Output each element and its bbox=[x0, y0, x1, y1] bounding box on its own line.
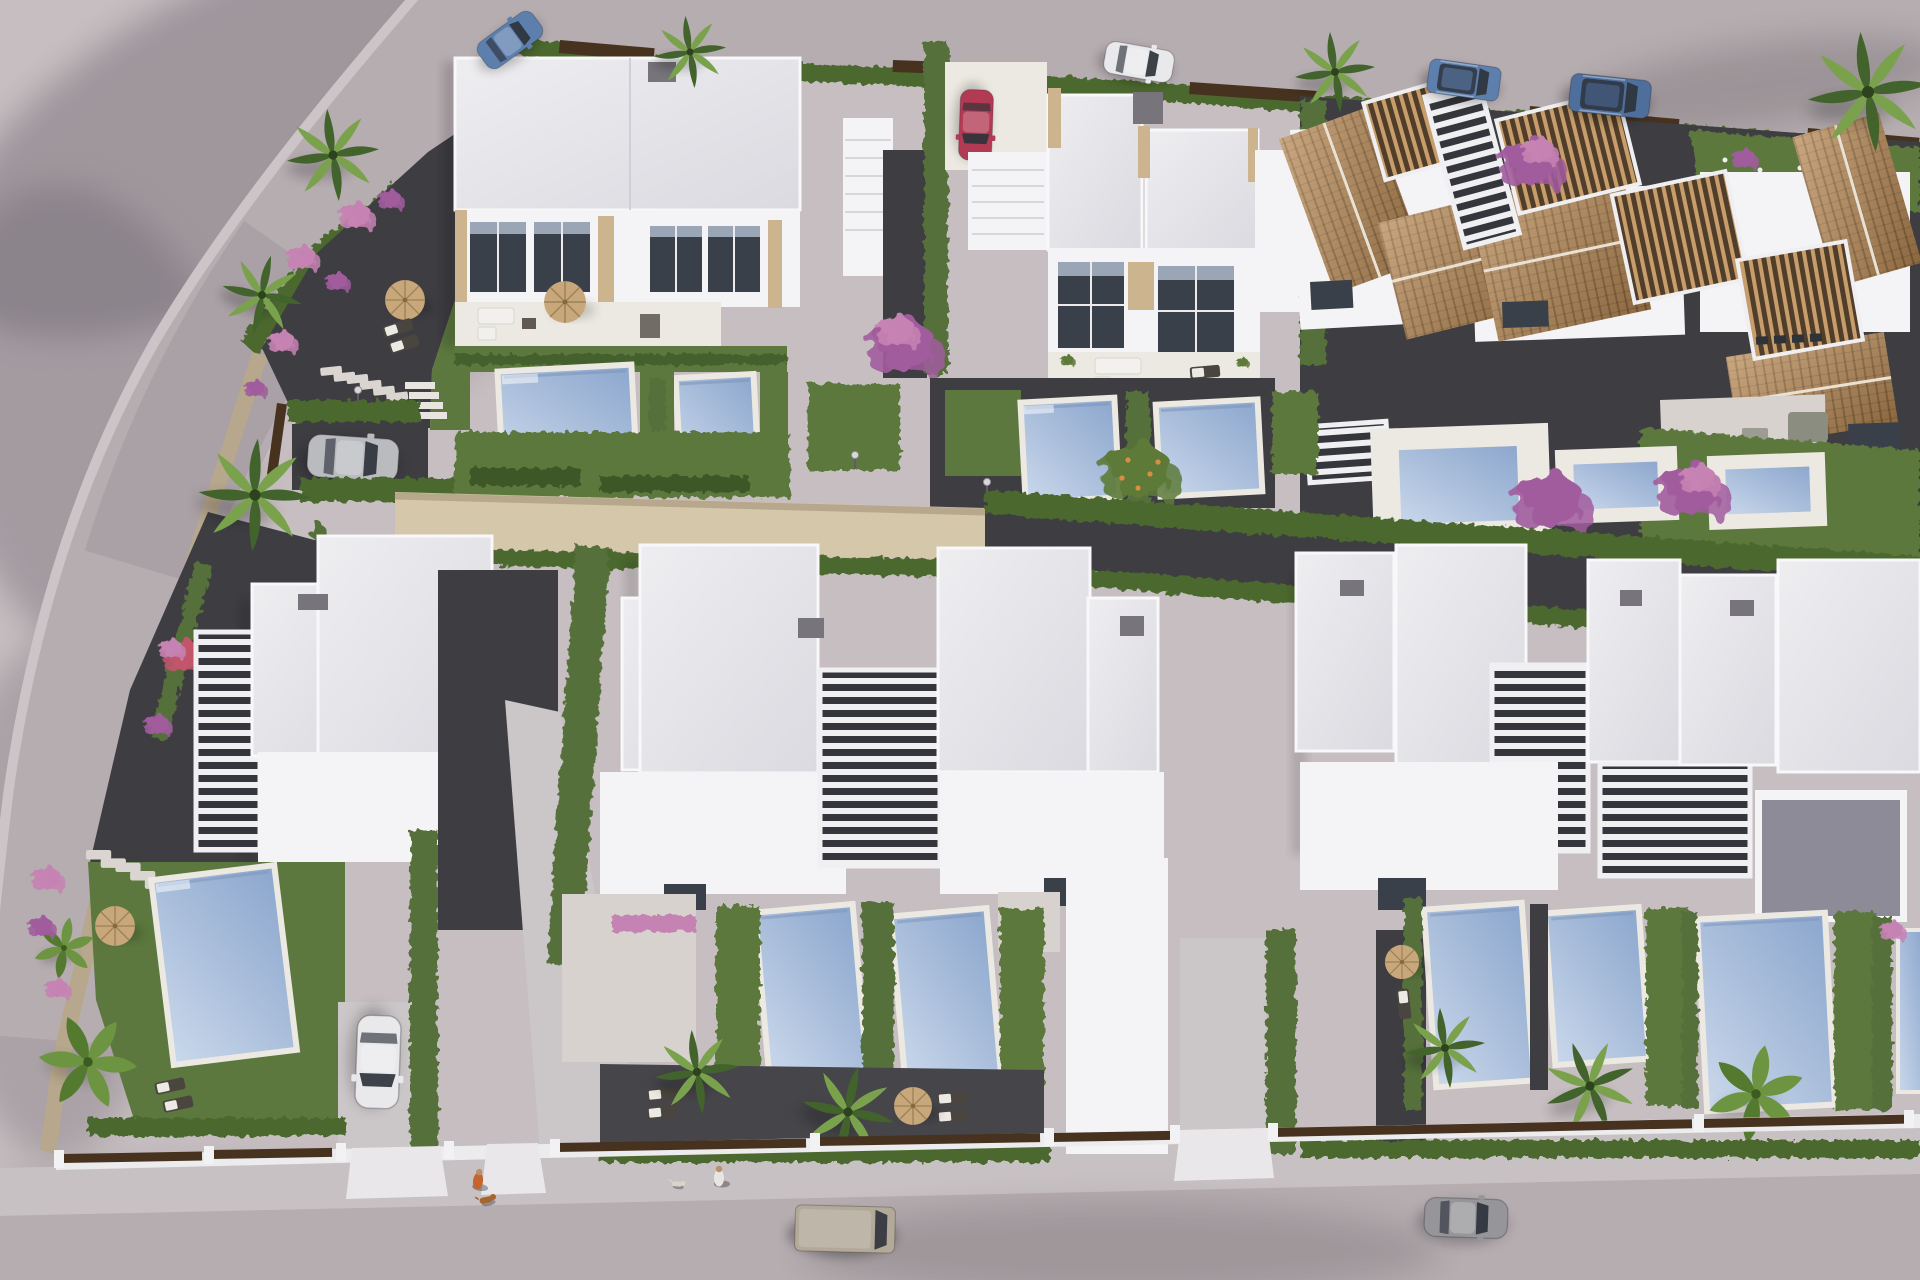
grass-strip bbox=[716, 906, 760, 1078]
hedge bbox=[410, 830, 438, 1152]
cypress-hedge bbox=[924, 42, 948, 374]
pergola-stair-court bbox=[820, 670, 940, 866]
hedge-strip bbox=[1872, 916, 1892, 1110]
lower-wing bbox=[1300, 762, 1558, 890]
flat-roof bbox=[938, 548, 1090, 772]
rooftop-unit bbox=[298, 594, 328, 610]
garage-walls bbox=[1066, 858, 1168, 1154]
pool-b4c bbox=[1697, 913, 1835, 1111]
rooftop-unit bbox=[798, 618, 824, 638]
rooftop-unit bbox=[1120, 616, 1144, 636]
hedge bbox=[88, 1118, 346, 1136]
pool-b1 bbox=[151, 865, 297, 1065]
pool-partial-edge bbox=[1898, 930, 1920, 1092]
grass-strip bbox=[1272, 392, 1318, 474]
gravel-strip bbox=[1530, 904, 1548, 1090]
planter-flowers bbox=[612, 916, 696, 932]
rooftop-unit bbox=[1133, 92, 1163, 124]
cypress-hedge bbox=[1266, 930, 1296, 1154]
hedge-strip bbox=[862, 902, 894, 1086]
grass-patch bbox=[945, 390, 1021, 476]
grass-strip bbox=[1834, 912, 1876, 1110]
hedge bbox=[1300, 1140, 1920, 1158]
beige-van bbox=[786, 1204, 897, 1258]
hedge bbox=[470, 468, 580, 486]
grass-strip bbox=[1000, 908, 1044, 1084]
pergola-court bbox=[1600, 764, 1750, 876]
flat-roof bbox=[1680, 575, 1776, 765]
pool-b3 bbox=[891, 908, 1001, 1086]
pool-b4b bbox=[1545, 907, 1649, 1065]
flat-roof bbox=[1146, 130, 1258, 250]
flat-roof bbox=[1778, 560, 1920, 772]
mediterranean-cluster bbox=[1272, 82, 1920, 584]
driveway bbox=[1180, 938, 1266, 1154]
pool-b2 bbox=[755, 904, 867, 1078]
aerial-render bbox=[0, 0, 1920, 1280]
inner-court bbox=[1762, 800, 1900, 916]
hedge bbox=[600, 476, 750, 492]
flat-roof bbox=[640, 545, 818, 773]
hedge-strip bbox=[1682, 912, 1698, 1108]
flat-roof bbox=[1048, 95, 1142, 250]
flat-roof bbox=[455, 58, 800, 210]
pergola-court-b2b3 bbox=[820, 670, 940, 866]
stone-trim bbox=[1128, 262, 1154, 310]
lower-wing bbox=[600, 772, 846, 894]
pergola-court bbox=[196, 632, 260, 850]
hedge bbox=[288, 400, 420, 422]
